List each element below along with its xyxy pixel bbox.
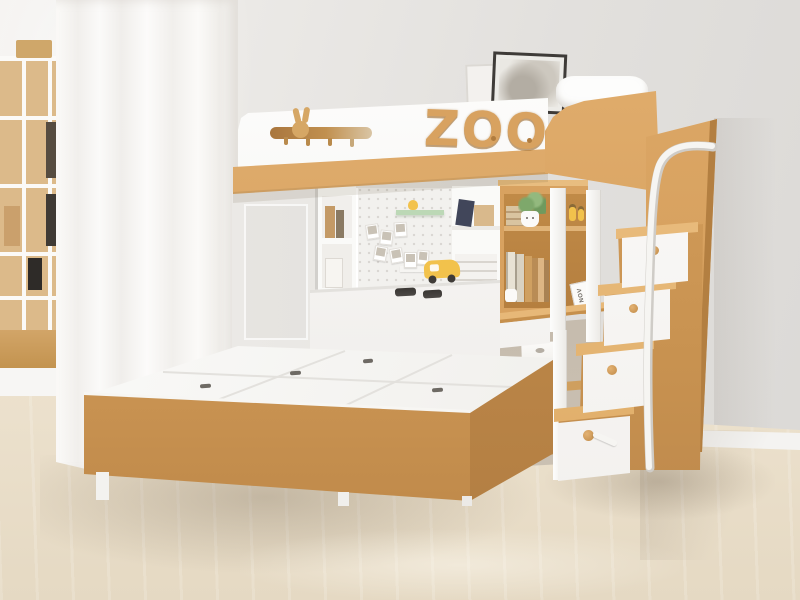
kids-room-photo: NOV: [0, 0, 800, 600]
stair-handrail: [0, 0, 800, 600]
